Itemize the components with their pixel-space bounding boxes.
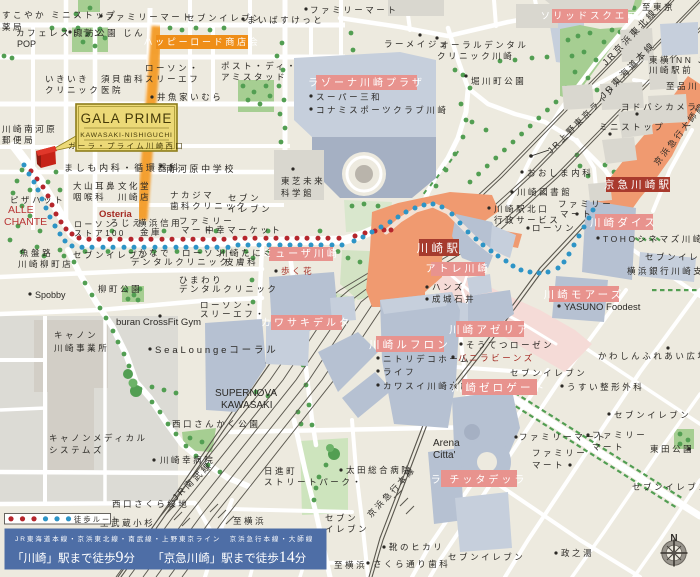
svg-text:川崎事業所: 川崎事業所 bbox=[54, 343, 109, 353]
svg-text:金庫: 金庫 bbox=[140, 227, 162, 237]
svg-text:JR東海道本線・京浜東北線・南武線・上野東京ライン 京浜急行: JR東海道本線・京浜東北線・南武線・上野東京ライン 京浜急行本線・大師線 bbox=[15, 534, 314, 543]
svg-text:医院: 医院 bbox=[101, 85, 123, 95]
svg-text:柳町公園: 柳町公園 bbox=[98, 284, 142, 294]
svg-text:セブンイレブン: セブンイレブン bbox=[448, 552, 525, 562]
svg-text:セブンイレブン: セブンイレブン bbox=[632, 482, 700, 492]
svg-text:諏訪公園 じん: 諏訪公園 じん bbox=[74, 28, 145, 38]
svg-text:デンタルクリニック: デンタルクリニック bbox=[131, 257, 230, 267]
svg-text:川崎モアーズ: 川崎モアーズ bbox=[544, 288, 625, 301]
svg-text:至品川: 至品川 bbox=[666, 81, 699, 91]
svg-text:ニトリデコホーム: ニトリデコホーム bbox=[383, 354, 471, 364]
svg-text:ナカジマ: ナカジマ bbox=[170, 190, 214, 200]
svg-text:歩く花: 歩く花 bbox=[281, 266, 314, 276]
svg-text:堀川町公園: 堀川町公園 bbox=[471, 76, 526, 86]
svg-text:TOHOシネマズ川崎: TOHOシネマズ川崎 bbox=[603, 234, 700, 244]
svg-text:buran CrossFit Gym: buran CrossFit Gym bbox=[116, 317, 201, 328]
svg-text:KAWASAKI: KAWASAKI bbox=[221, 400, 273, 411]
svg-text:カワサキデルタ: カワサキデルタ bbox=[261, 316, 352, 329]
svg-text:POP: POP bbox=[17, 39, 36, 49]
svg-text:YASUNO Foodest: YASUNO Foodest bbox=[564, 302, 641, 313]
svg-text:ハッピーロード商店会: ハッピーロード商店会 bbox=[143, 36, 260, 47]
svg-text:須貝歯科: 須貝歯科 bbox=[101, 74, 145, 84]
svg-text:ミューザ川崎: ミューザ川崎 bbox=[262, 247, 340, 260]
svg-text:成城石井: 成城石井 bbox=[432, 294, 476, 304]
svg-text:ましも内科・循環器科: ましも内科・循環器科 bbox=[64, 162, 181, 173]
svg-text:川崎ゼロゲート: 川崎ゼロゲート bbox=[452, 381, 548, 394]
svg-text:ライフ: ライフ bbox=[383, 367, 416, 377]
svg-text:キャノン: キャノン bbox=[54, 330, 98, 340]
svg-text:川崎ルフロン: 川崎ルフロン bbox=[369, 338, 451, 351]
svg-text:川崎アゼリア: 川崎アゼリア bbox=[449, 323, 531, 336]
svg-text:マート: マート bbox=[532, 460, 565, 470]
svg-text:川崎駅前: 川崎駅前 bbox=[649, 65, 693, 75]
svg-text:横浜銀行川崎支店: 横浜銀行川崎支店 bbox=[627, 266, 700, 276]
svg-text:川崎柳町店: 川崎柳町店 bbox=[18, 259, 73, 269]
svg-text:クリニック川崎: クリニック川崎 bbox=[437, 51, 514, 61]
svg-text:N: N bbox=[670, 533, 677, 544]
svg-text:京急川崎駅: 京急川崎駅 bbox=[604, 178, 672, 191]
svg-text:KAWASAKI-NISHIGUCHI: KAWASAKI-NISHIGUCHI bbox=[80, 132, 173, 139]
svg-text:郵便局: 郵便局 bbox=[2, 135, 35, 145]
svg-text:GALA PRIME: GALA PRIME bbox=[81, 111, 173, 126]
svg-text:魚盤路: 魚盤路 bbox=[20, 248, 53, 258]
svg-text:井魚家いむら: 井魚家いむら bbox=[157, 92, 223, 102]
svg-text:ファミリーマート: ファミリーマート bbox=[310, 5, 398, 15]
svg-text:セブン: セブン bbox=[228, 193, 261, 203]
svg-text:マート: マート bbox=[592, 442, 625, 452]
svg-text:ファミリーマート: ファミリーマート bbox=[105, 12, 193, 22]
svg-text:川崎駅北口: 川崎駅北口 bbox=[494, 204, 549, 214]
svg-text:川崎店: 川崎店 bbox=[118, 192, 151, 202]
svg-text:まいばすけっと: まいばすけっと bbox=[247, 15, 324, 25]
svg-text:ポスト・ディ・: ポスト・ディ・ bbox=[221, 61, 298, 71]
svg-text:SUPERNOVA: SUPERNOVA bbox=[215, 388, 277, 399]
svg-text:スーパー三和: スーパー三和 bbox=[316, 92, 382, 102]
svg-text:ファミリー: ファミリー bbox=[592, 430, 647, 440]
svg-text:日進町: 日進町 bbox=[264, 466, 297, 476]
svg-text:南河原中学校: 南河原中学校 bbox=[166, 163, 236, 174]
svg-text:中幸マーケット: 中幸マーケット bbox=[205, 225, 282, 235]
svg-text:川崎ダイス: 川崎ダイス bbox=[590, 216, 658, 229]
svg-text:ヨドバシカメラ: ヨドバシカメラ bbox=[621, 102, 698, 112]
svg-text:ローソン・: ローソン・ bbox=[145, 63, 200, 73]
svg-text:システムズ: システムズ bbox=[49, 445, 104, 455]
svg-text:Citta': Citta' bbox=[433, 450, 456, 461]
svg-text:かわしんふれあい広場: かわしんふれあい広場 bbox=[598, 351, 700, 361]
svg-text:Spobby: Spobby bbox=[35, 290, 66, 300]
svg-text:西口さくら緑地: 西口さくら緑地 bbox=[112, 499, 189, 509]
svg-text:東芝未来: 東芝未来 bbox=[281, 176, 325, 186]
svg-text:うすい整形外科: うすい整形外科 bbox=[567, 382, 644, 392]
svg-text:セブンイレブン: セブンイレブン bbox=[510, 368, 587, 378]
svg-text:セブンイレブン: セブンイレブン bbox=[645, 252, 700, 262]
svg-text:川崎南河原: 川崎南河原 bbox=[2, 124, 57, 134]
svg-text:SeaLoungeコーラル: SeaLoungeコーラル bbox=[155, 345, 279, 356]
svg-text:そうてつローゼン: そうてつローゼン bbox=[466, 340, 554, 350]
svg-text:至横浜: 至横浜 bbox=[334, 560, 367, 570]
svg-text:Arena: Arena bbox=[433, 438, 460, 449]
svg-text:川崎図書館: 川崎図書館 bbox=[517, 187, 572, 197]
svg-text:ラ チッタデッラ: ラ チッタデッラ bbox=[431, 473, 528, 486]
svg-text:至横浜: 至横浜 bbox=[233, 516, 266, 526]
svg-text:セブンイレブン: セブンイレブン bbox=[614, 410, 691, 420]
svg-text:ローソン: ローソン bbox=[74, 220, 116, 229]
svg-text:ALLE: ALLE bbox=[8, 204, 34, 216]
svg-text:科学館: 科学館 bbox=[281, 188, 314, 198]
svg-text:川崎幸病院: 川崎幸病院 bbox=[160, 455, 215, 465]
svg-text:スリーエフ: スリーエフ bbox=[145, 74, 200, 84]
svg-text:大山耳鼻: 大山耳鼻 bbox=[73, 181, 117, 191]
svg-text:ファミリー: ファミリー bbox=[532, 448, 587, 458]
svg-text:ミニストップ: ミニストップ bbox=[599, 122, 665, 132]
svg-text:キャノンメディカル: キャノンメディカル bbox=[49, 433, 148, 443]
svg-text:徒歩ルート: 徒歩ルート bbox=[74, 515, 121, 524]
svg-text:ラゾーナ川崎プラザ: ラゾーナ川崎プラザ bbox=[308, 76, 425, 89]
svg-text:川崎駅: 川崎駅 bbox=[417, 241, 462, 255]
svg-text:オーラルデンタル: オーラルデンタル bbox=[440, 40, 528, 50]
svg-text:西口さんかく公園: 西口さんかく公園 bbox=[172, 419, 260, 429]
svg-text:アトレ川崎: アトレ川崎 bbox=[426, 262, 491, 275]
svg-text:文化堂: 文化堂 bbox=[118, 181, 151, 191]
svg-text:東横INN Jr: 東横INN Jr bbox=[649, 55, 700, 65]
svg-text:クリニック: クリニック bbox=[45, 85, 100, 95]
svg-text:スリーエフ・: スリーエフ・ bbox=[200, 309, 266, 319]
svg-text:CHANTE: CHANTE bbox=[4, 216, 47, 228]
svg-text:デンタルクリニック: デンタルクリニック bbox=[179, 284, 278, 294]
svg-text:コナミスポーツクラブ川崎: コナミスポーツクラブ川崎 bbox=[316, 105, 448, 115]
svg-text:イレブン: イレブン bbox=[325, 524, 369, 534]
svg-text:ローソン: ローソン bbox=[532, 223, 576, 233]
svg-text:さくら通り歯科: さくら通り歯科 bbox=[373, 559, 450, 569]
svg-text:アミスタッド: アミスタッド bbox=[221, 72, 287, 82]
svg-text:ハンズ: ハンズ bbox=[432, 282, 465, 292]
svg-text:ストリートパーク・: ストリートパーク・ bbox=[264, 477, 363, 487]
svg-text:政之湯: 政之湯 bbox=[561, 548, 594, 558]
svg-text:太田総合病院: 太田総合病院 bbox=[346, 465, 412, 475]
svg-text:ソリッドスクエア: ソリッドスクエア bbox=[541, 11, 640, 22]
svg-text:イレブン: イレブン bbox=[228, 204, 272, 214]
svg-text:靴のヒカリ: 靴のヒカリ bbox=[389, 542, 444, 552]
svg-text:皮膚科: 皮膚科 bbox=[225, 257, 258, 267]
svg-text:ファミリー: ファミリー bbox=[558, 199, 613, 209]
svg-text:咽喉科: 咽喉科 bbox=[73, 192, 106, 202]
svg-text:いきいき: いきいき bbox=[45, 74, 89, 84]
svg-text:ストア100: ストア100 bbox=[74, 229, 126, 238]
svg-text:ガーラ・プライム川崎西口: ガーラ・プライム川崎西口 bbox=[68, 141, 185, 151]
svg-text:至東京: 至東京 bbox=[642, 2, 675, 12]
svg-text:おおしま内科: おおしま内科 bbox=[527, 168, 593, 178]
svg-text:セブン: セブン bbox=[325, 513, 358, 523]
